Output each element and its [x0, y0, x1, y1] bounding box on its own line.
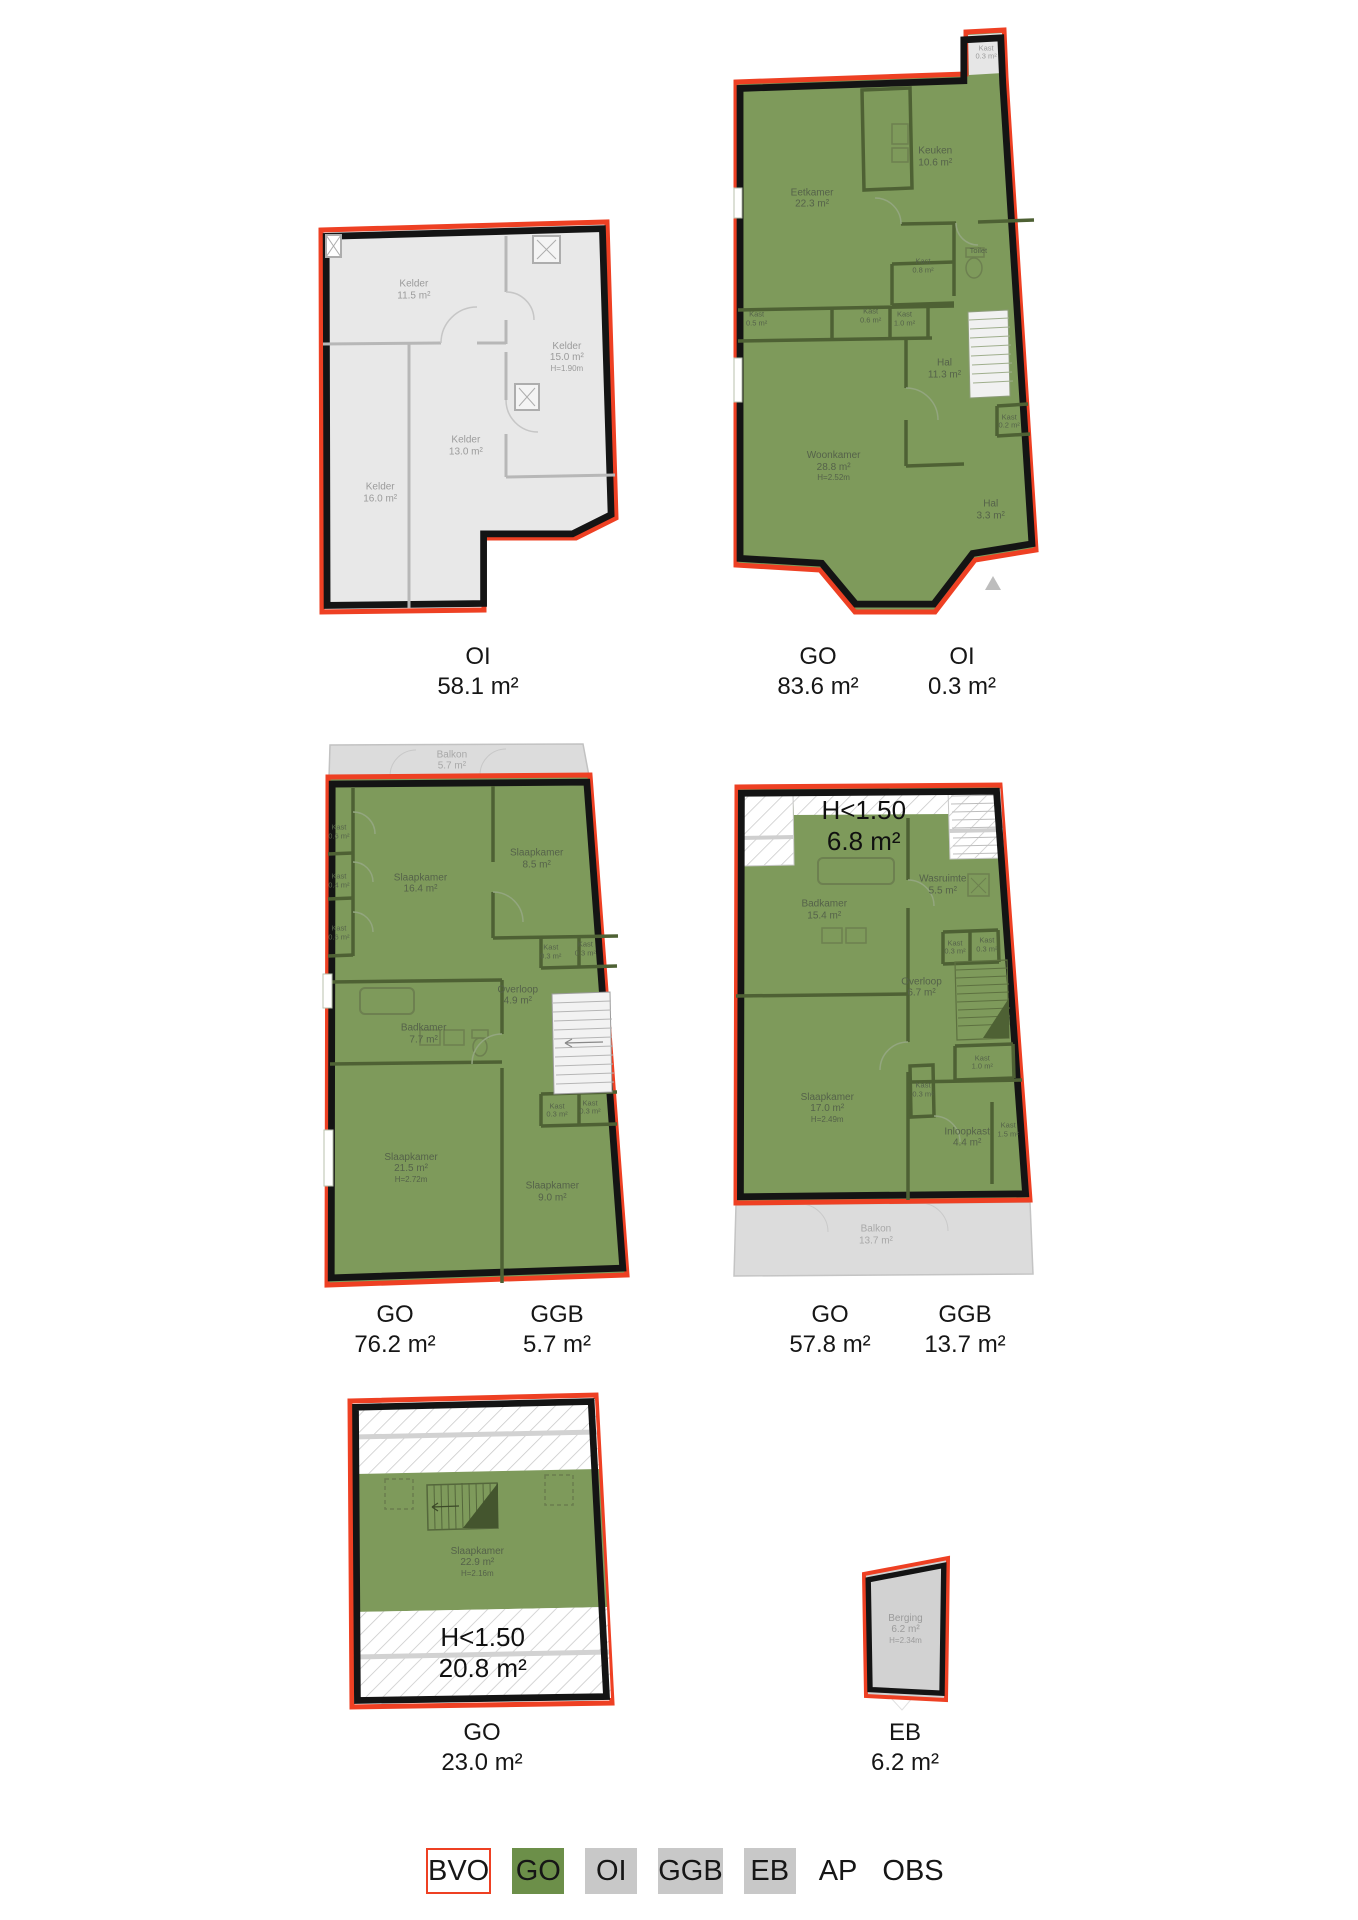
room-label: Inloopkast 4.4 m² — [944, 1126, 990, 1149]
room-label: Toilet — [970, 247, 988, 256]
room-area: 0.6 m² — [328, 832, 349, 841]
caption-area: 13.7 m² — [890, 1330, 1040, 1360]
room-name: Overloop — [901, 976, 942, 988]
floorplan-tweede-verdieping: H<1.50 6.8 m² Badkamer 15.4 m² Wasruimte… — [730, 780, 1034, 1280]
room-area: 11.3 m² — [928, 369, 961, 381]
plan-caption: GO 23.0 m² — [407, 1718, 557, 1778]
room-area: 0.3 m² — [944, 948, 965, 957]
room-height: H=1.90m — [550, 364, 584, 373]
plan-caption: GO 57.8 m² — [755, 1300, 905, 1360]
room-label: Berging 6.2 m² H=2.34m — [888, 1613, 922, 1645]
room-area: 6.2 m² — [888, 1624, 922, 1636]
room-area: 1.0 m² — [894, 319, 915, 328]
caption-area: 0.3 m² — [887, 672, 1037, 702]
room-label: Balkon 13.7 m² — [859, 1224, 893, 1247]
caption-code: GO — [755, 1300, 905, 1330]
legend-item-bvo: BVO — [426, 1848, 491, 1894]
room-name: Slaapkamer — [801, 1092, 854, 1104]
room-area: 4.4 m² — [944, 1138, 990, 1150]
floorplan-zolder: Slaapkamer 22.9 m² H=2.16m H<1.50 20.8 m… — [345, 1395, 615, 1710]
room-label: Kast 0.3 m² — [579, 1099, 600, 1116]
room-label: Kast 1.0 m² — [972, 1054, 993, 1071]
legend-label: GGB — [658, 1855, 722, 1888]
room-label: Overloop 6.7 m² — [901, 976, 942, 999]
bvo-outline — [321, 222, 616, 612]
room-area: 17.0 m² — [801, 1103, 854, 1115]
room-label: Overloop 4.9 m² — [498, 984, 539, 1007]
room-area: 0.4 m² — [328, 881, 349, 890]
room-area: 0.3 m² — [575, 949, 596, 958]
room-area: 1.0 m² — [972, 1063, 993, 1072]
room-area: 8.5 m² — [510, 859, 563, 871]
caption-area: 23.0 m² — [407, 1748, 557, 1778]
legend-item-eb: EB — [744, 1848, 796, 1894]
room-height: H=2.49m — [801, 1115, 854, 1124]
room-area: 0.3 m² — [912, 1090, 933, 1099]
legend: BVO GO OI GGB EB AP OBS — [426, 1848, 946, 1894]
room-name: Kelder — [550, 341, 584, 353]
go-area — [355, 1469, 607, 1612]
caption-code: OI — [403, 642, 553, 672]
room-label: Kast 0.3 m² — [546, 1102, 567, 1119]
room-name: Hal — [977, 499, 1005, 511]
room-area: 22.3 m² — [791, 199, 834, 211]
room-name: Slaapkamer — [510, 848, 563, 860]
room-label: Slaapkamer 8.5 m² — [510, 848, 563, 871]
caption-code: GGB — [482, 1300, 632, 1330]
room-name: Toilet — [970, 247, 988, 256]
room-name: Slaapkamer — [526, 1181, 579, 1193]
room-label: Kelder 15.0 m² H=1.90m — [550, 341, 584, 373]
floorplan-drawing — [732, 28, 1040, 616]
room-area: 6.7 m² — [901, 988, 942, 1000]
low-height-line1: H<1.50 — [821, 795, 906, 826]
room-name: Woonkamer — [807, 450, 861, 462]
floorplan-drawing — [320, 742, 634, 1288]
legend-item-ap: AP — [817, 1848, 860, 1894]
room-area: 15.4 m² — [801, 910, 847, 922]
caption-code: OI — [887, 642, 1037, 672]
caption-area: 57.8 m² — [755, 1330, 905, 1360]
room-name: Slaapkamer — [394, 872, 447, 884]
room-name: Balkon — [859, 1224, 893, 1236]
north-triangle-icon — [985, 576, 1001, 590]
room-area: 0.5 m² — [746, 319, 767, 328]
floorplan-berging: Berging 6.2 m² H=2.34m — [858, 1556, 953, 1714]
room-label: Kelder 11.5 m² — [397, 279, 430, 302]
room-label: Slaapkamer 17.0 m² H=2.49m — [801, 1092, 854, 1124]
legend-item-ggb: GGB — [658, 1848, 722, 1894]
caption-area: 83.6 m² — [743, 672, 893, 702]
floorplan-sheet: Kelder 11.5 m² Kelder 15.0 m² H=1.90m Ke… — [0, 0, 1358, 1920]
room-label: Kelder 13.0 m² — [449, 435, 483, 458]
room-name: Balkon — [437, 749, 468, 761]
room-area: 4.9 m² — [498, 996, 539, 1008]
legend-label: EB — [750, 1855, 789, 1888]
floorplan-bel-etage: Eetkamer 22.3 m² Keuken 10.6 m² Kast 0.3… — [732, 28, 1040, 616]
room-label: Kast 0.3 m² — [976, 937, 997, 954]
low-height-line1: H<1.50 — [439, 1622, 527, 1653]
room-area: 21.5 m² — [384, 1163, 437, 1175]
room-name: Hal — [928, 358, 961, 370]
room-name: Kelder — [363, 482, 397, 494]
room-label: Kast 0.3 m² — [575, 941, 596, 958]
room-name: Inloopkast — [944, 1126, 990, 1138]
room-label: Slaapkamer 9.0 m² — [526, 1181, 579, 1204]
room-area: 10.6 m² — [918, 157, 952, 169]
legend-label: BVO — [428, 1855, 489, 1888]
room-label: Slaapkamer 16.4 m² — [394, 872, 447, 895]
caption-code: GGB — [890, 1300, 1040, 1330]
plan-caption: GO 76.2 m² — [320, 1300, 470, 1360]
room-label: Kast 1.5 m² — [998, 1122, 1019, 1139]
room-label: Kast 0.6 m² — [860, 308, 881, 325]
stairs — [968, 310, 1013, 398]
room-area: 0.3 m² — [546, 1111, 567, 1120]
room-label: Kast 1.0 m² — [894, 311, 915, 328]
plan-caption: GO 83.6 m² — [743, 642, 893, 702]
room-area: 16.0 m² — [363, 493, 397, 505]
legend-label: OI — [596, 1855, 627, 1888]
room-label: Kast 0.6 m² — [328, 824, 349, 841]
room-label: Kast 0.3 m² — [975, 44, 996, 61]
room-name: Keuken — [918, 146, 952, 158]
room-name: Badkamer — [401, 1023, 447, 1035]
room-area: 0.3 m² — [975, 53, 996, 62]
low-height-label: H<1.50 6.8 m² — [821, 795, 906, 857]
room-area: 0.6 m² — [328, 933, 349, 942]
room-name: Berging — [888, 1613, 922, 1625]
room-label: Eetkamer 22.3 m² — [791, 187, 834, 210]
room-area: 22.9 m² — [451, 1557, 504, 1569]
room-area: 0.2 m² — [999, 422, 1020, 431]
plan-caption: GGB 5.7 m² — [482, 1300, 632, 1360]
room-name: Kelder — [449, 435, 483, 447]
room-height: H=2.34m — [888, 1636, 922, 1645]
room-label: Badkamer 15.4 m² — [801, 899, 847, 922]
plan-caption: GGB 13.7 m² — [890, 1300, 1040, 1360]
stairs — [552, 992, 614, 1094]
room-label: Hal 11.3 m² — [928, 358, 961, 381]
room-name: Eetkamer — [791, 187, 834, 199]
room-area: 0.3 m² — [579, 1108, 600, 1117]
caption-area: 76.2 m² — [320, 1330, 470, 1360]
room-label: Keuken 10.6 m² — [918, 146, 952, 169]
room-area: 13.7 m² — [859, 1235, 893, 1247]
legend-item-oi: OI — [585, 1848, 637, 1894]
room-label: Badkamer 7.7 m² — [401, 1023, 447, 1046]
room-area: 28.8 m² — [807, 462, 861, 474]
room-area: 5.7 m² — [437, 761, 468, 773]
room-label: Slaapkamer 22.9 m² H=2.16m — [451, 1546, 504, 1578]
caption-code: GO — [743, 642, 893, 672]
room-label: Kast 0.3 m² — [912, 1082, 933, 1099]
room-label: Kast 0.6 m² — [328, 925, 349, 942]
low-height-label: H<1.50 20.8 m² — [439, 1622, 527, 1684]
room-area: 16.4 m² — [394, 884, 447, 896]
legend-label: AP — [819, 1855, 858, 1888]
room-area: 1.5 m² — [998, 1130, 1019, 1139]
room-label: Hal 3.3 m² — [977, 499, 1005, 522]
room-area: 3.3 m² — [977, 510, 1005, 522]
room-label: Kast 0.5 m² — [746, 311, 767, 328]
room-label: Woonkamer 28.8 m² H=2.52m — [807, 450, 861, 482]
room-name: Wasruimte — [919, 874, 966, 886]
room-label: Kast 0.3 m² — [540, 944, 561, 961]
floorplan-drawing — [319, 222, 625, 612]
room-label: Kast 0.8 m² — [912, 258, 933, 275]
room-name: Slaapkamer — [384, 1152, 437, 1164]
floorplan-souterrain: Kelder 11.5 m² Kelder 15.0 m² H=1.90m Ke… — [319, 222, 625, 612]
room-height: H=2.72m — [384, 1175, 437, 1184]
room-label: Kast 0.2 m² — [999, 413, 1020, 430]
plan-caption: OI 0.3 m² — [887, 642, 1037, 702]
room-label: Kast 0.3 m² — [944, 939, 965, 956]
plan-caption: EB 6.2 m² — [830, 1718, 980, 1778]
caption-code: EB — [830, 1718, 980, 1748]
caption-area: 6.2 m² — [830, 1748, 980, 1778]
low-height-line2: 20.8 m² — [439, 1653, 527, 1684]
room-name: Overloop — [498, 984, 539, 996]
room-area: 9.0 m² — [526, 1192, 579, 1204]
room-height: H=2.52m — [807, 473, 861, 482]
low-height-line2: 6.8 m² — [821, 826, 906, 857]
legend-item-obs: OBS — [880, 1848, 945, 1894]
legend-label: GO — [516, 1855, 561, 1888]
room-area: 5.5 m² — [919, 885, 966, 897]
room-area: 0.3 m² — [540, 952, 561, 961]
caption-code: GO — [320, 1300, 470, 1330]
room-name: Kelder — [397, 279, 430, 291]
floorplan-eerste-verdieping: Balkon 5.7 m² Kast 0.6 m² Kast 0.4 m² Ka… — [320, 742, 634, 1288]
room-label: Slaapkamer 21.5 m² H=2.72m — [384, 1152, 437, 1184]
room-area: 7.7 m² — [401, 1034, 447, 1046]
plan-caption: OI 58.1 m² — [403, 642, 553, 702]
room-label: Kelder 16.0 m² — [363, 482, 397, 505]
caption-area: 58.1 m² — [403, 672, 553, 702]
legend-label: OBS — [882, 1855, 943, 1888]
caption-code: GO — [407, 1718, 557, 1748]
room-label: Kast 0.4 m² — [328, 873, 349, 890]
room-area: 11.5 m² — [397, 290, 430, 302]
legend-item-go: GO — [512, 1848, 564, 1894]
room-area: 0.6 m² — [860, 316, 881, 325]
room-name: Slaapkamer — [451, 1546, 504, 1558]
caption-area: 5.7 m² — [482, 1330, 632, 1360]
room-label: Balkon 5.7 m² — [437, 749, 468, 772]
room-name: Badkamer — [801, 899, 847, 911]
room-area: 0.8 m² — [912, 266, 933, 275]
room-area: 0.3 m² — [976, 945, 997, 954]
room-label: Wasruimte 5.5 m² — [919, 874, 966, 897]
room-height: H=2.16m — [451, 1569, 504, 1578]
room-area: 13.0 m² — [449, 446, 483, 458]
room-area: 15.0 m² — [550, 352, 584, 364]
